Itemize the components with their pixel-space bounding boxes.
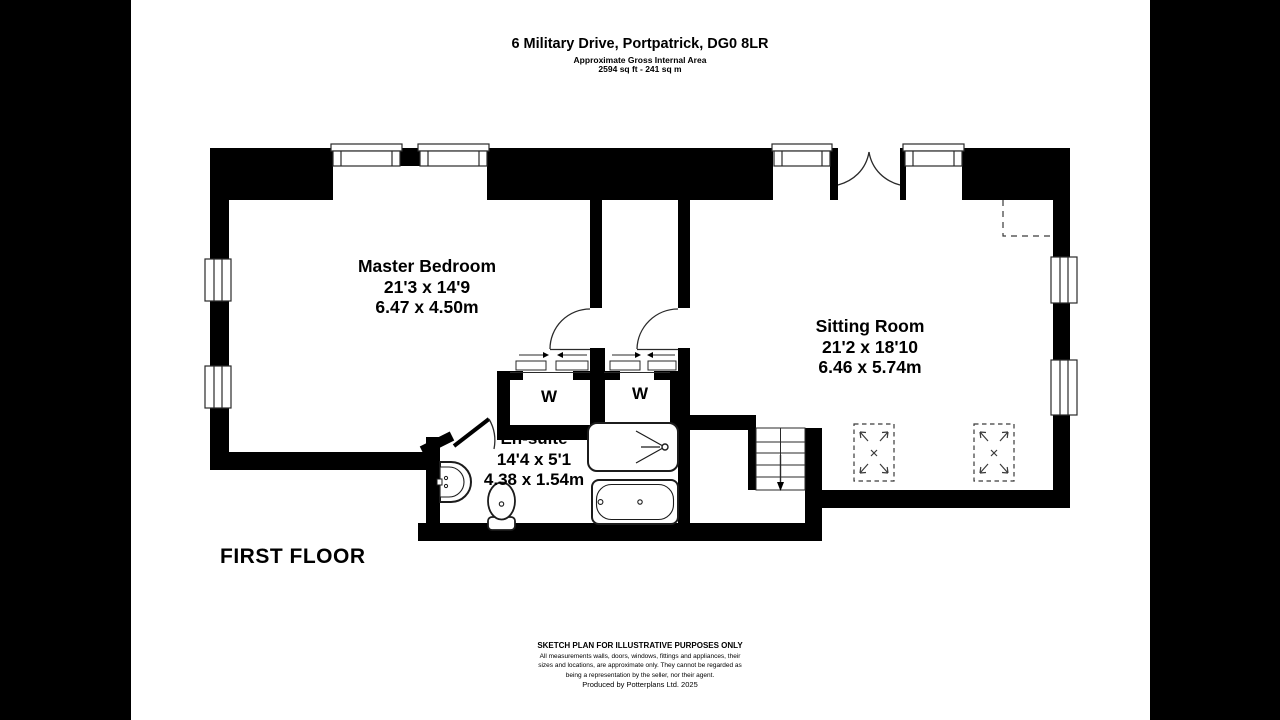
- room-label-ensuite: En-suite 14'4 x 5'1 4.38 x 1.54m: [484, 429, 584, 491]
- wall-left: [210, 301, 229, 366]
- wall-master-bottom: [210, 452, 433, 470]
- wardrobe-label-right: W: [632, 384, 648, 404]
- disclaimer-line: All measurements walls, doors, windows, …: [538, 652, 742, 661]
- room-dims-imperial: 21'3 x 14'9: [358, 277, 496, 298]
- area-value: 2594 sq ft - 241 sq m: [598, 64, 681, 74]
- sitting-door-arc: [637, 309, 678, 349]
- wall-wardrobe: [497, 371, 510, 433]
- wall: [962, 148, 1070, 200]
- wall: [487, 148, 773, 200]
- room-dims-metric: 4.38 x 1.54m: [484, 470, 584, 491]
- master-door-arc: [550, 309, 590, 349]
- sliding-panel: [516, 361, 546, 370]
- french-door-arc-right: [869, 152, 900, 185]
- skylight-marker: [974, 424, 1014, 481]
- window-right-1: [1051, 257, 1077, 303]
- wall-bottom: [418, 523, 822, 541]
- window-top-sitting-1: [772, 144, 832, 166]
- window-left-2: [205, 366, 231, 408]
- wall-corridor-right: [678, 200, 690, 308]
- wall-corridor-left: [590, 200, 602, 308]
- window-top-master-1: [331, 144, 402, 166]
- head-height-dashed-line: [1003, 200, 1053, 236]
- wall-window-mullion: [400, 148, 420, 166]
- wall-sitting-bottom: [805, 490, 1070, 508]
- wall-left: [210, 148, 229, 259]
- room-label-sitting-room: Sitting Room 21'2 x 18'10 6.46 x 5.74m: [816, 316, 925, 378]
- room-dims-metric: 6.46 x 5.74m: [816, 357, 925, 378]
- footer-disclaimer: All measurements walls, doors, windows, …: [538, 652, 742, 680]
- room-name: En-suite: [484, 429, 584, 450]
- room-name: Master Bedroom: [358, 256, 496, 277]
- window-left-1: [205, 259, 231, 301]
- floor-label: FIRST FLOOR: [220, 545, 366, 569]
- french-door-arc-left: [838, 152, 869, 185]
- room-dims-metric: 6.47 x 4.50m: [358, 297, 496, 318]
- footer-credit: Produced by Potterplans Ltd. 2025: [582, 680, 698, 689]
- wall-stairs-left: [748, 428, 756, 490]
- room-dims-imperial: 14'4 x 5'1: [484, 450, 584, 471]
- wall-right: [1053, 200, 1070, 257]
- sink: [437, 462, 471, 502]
- shower: [588, 423, 678, 471]
- window-top-sitting-2: [903, 144, 964, 166]
- window-right-2: [1051, 360, 1077, 415]
- disclaimer-line: being a representation by the seller, no…: [538, 671, 742, 680]
- skylight-marker: [854, 424, 894, 481]
- wall-door-jamb: [830, 148, 838, 200]
- room-label-master-bedroom: Master Bedroom 21'3 x 14'9 6.47 x 4.50m: [358, 256, 496, 318]
- room-dims-imperial: 21'2 x 18'10: [816, 337, 925, 358]
- disclaimer-line: sizes and locations, are approximate onl…: [538, 661, 742, 670]
- sliding-panel: [648, 361, 676, 370]
- wall-right: [1053, 303, 1070, 360]
- wardrobe-label-left: W: [541, 387, 557, 407]
- floorplan-drawing: [0, 0, 1280, 720]
- wall-landing-top: [678, 415, 756, 430]
- sliding-panel: [610, 361, 640, 370]
- screenshot: 6 Military Drive, Portpatrick, DG0 8LR A…: [0, 0, 1280, 720]
- bathtub: [592, 480, 678, 524]
- staircase: [756, 428, 805, 491]
- page-title: 6 Military Drive, Portpatrick, DG0 8LR: [511, 36, 768, 52]
- room-name: Sitting Room: [816, 316, 925, 337]
- wall-wardrobe: [670, 371, 684, 431]
- sliding-panel: [556, 361, 588, 370]
- footer-notice: SKETCH PLAN FOR ILLUSTRATIVE PURPOSES ON…: [537, 641, 742, 650]
- window-top-master-2: [418, 144, 489, 166]
